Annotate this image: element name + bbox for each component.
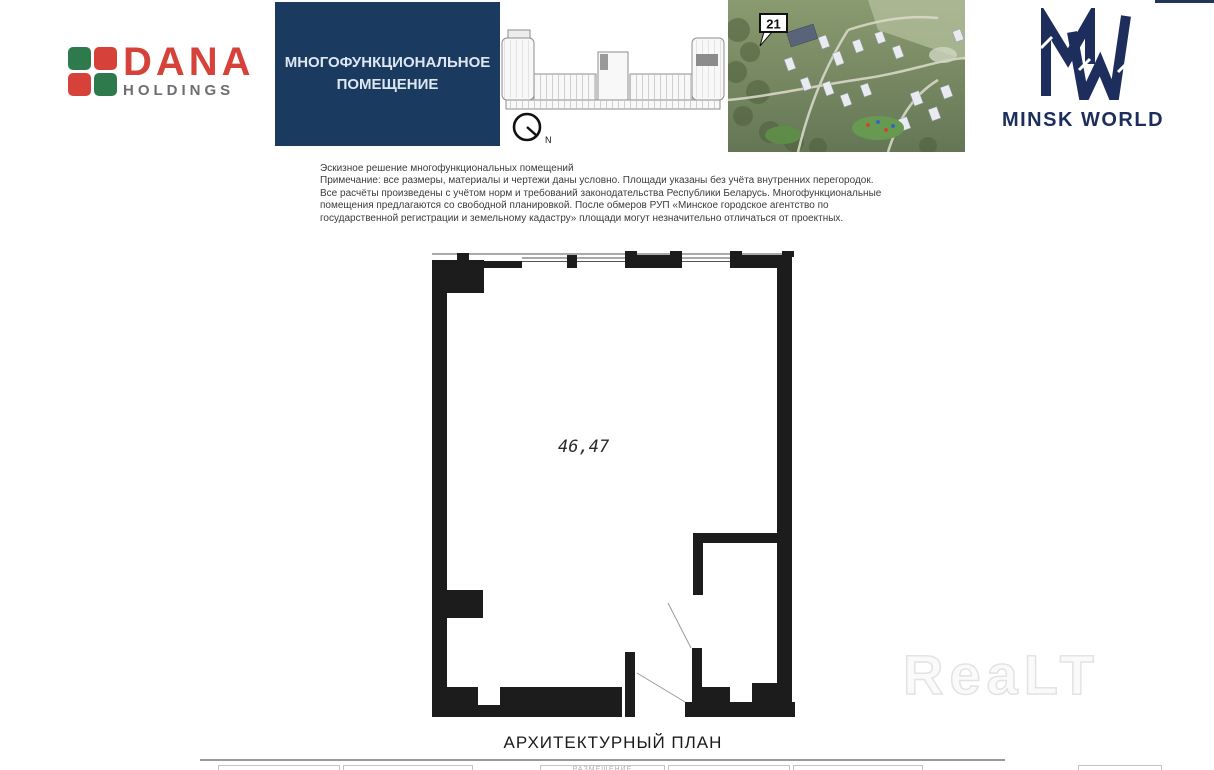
dana-square-green-icon [94, 73, 117, 96]
footer-cell [668, 765, 790, 770]
minsk-world-wordmark: MINSK WORLD [998, 109, 1168, 132]
footer-cell: РАЗМЕЩЕНИЕ [540, 765, 665, 770]
footer-faint-label: РАЗМЕЩЕНИЕ [541, 766, 664, 770]
site-aerial-photo: 21 [728, 0, 965, 152]
wall-left [432, 260, 447, 717]
premise-type-banner: МНОГОФУНКЦИОНАЛЬНОЕ ПОМЕЩЕНИЕ [275, 2, 500, 146]
dana-holdings-label: HOLDINGS [123, 82, 255, 99]
premise-type-line1: МНОГОФУНКЦИОНАЛЬНОЕ [285, 52, 491, 74]
dana-holdings-logo: DANA HOLDINGS [68, 44, 255, 99]
dana-square-red-icon [94, 47, 117, 70]
premise-type-line2: ПОМЕЩЕНИЕ [337, 74, 439, 96]
door-swing-line [637, 673, 685, 702]
footer-cell [218, 765, 340, 770]
key-plan-highlight [696, 54, 718, 66]
dana-wordmark: DANA [123, 44, 255, 80]
wall-bottom-left [432, 687, 478, 717]
footer-rule [200, 759, 1005, 761]
dana-square-red-icon [68, 73, 91, 96]
dana-logo-squares-icon [68, 47, 117, 96]
minsk-world-logo: MINSK WORLD [998, 8, 1168, 132]
compass-north-icon: N [510, 110, 560, 150]
mw-monogram-icon [1035, 8, 1131, 100]
wall-interior-top [693, 533, 777, 543]
footer-cell [343, 765, 473, 770]
top-edge-strip [1155, 0, 1214, 3]
plan-caption: АРХИТЕКТУРНЫЙ ПЛАН [430, 733, 796, 753]
building-number-label: 21 [766, 17, 780, 32]
wall-right [777, 268, 792, 702]
area-label: 46,47 [558, 437, 610, 457]
realt-watermark: ReaLT [903, 642, 1100, 707]
floor-plan: 46,47 [430, 250, 796, 720]
disclaimer-notes: Эскизное решение многофункциональных пом… [320, 163, 1020, 225]
footer-cell [1078, 765, 1162, 770]
compass-north-label: N [545, 135, 552, 145]
page: DANA HOLDINGS МНОГОФУНКЦИОНАЛЬНОЕ ПОМЕЩЕ… [0, 0, 1214, 770]
title-block-partial: РАЗМЕЩЕНИЕ [200, 757, 1180, 770]
door-swing-line [668, 603, 691, 648]
footer-cell [793, 765, 923, 770]
dana-square-green-icon [68, 47, 91, 70]
